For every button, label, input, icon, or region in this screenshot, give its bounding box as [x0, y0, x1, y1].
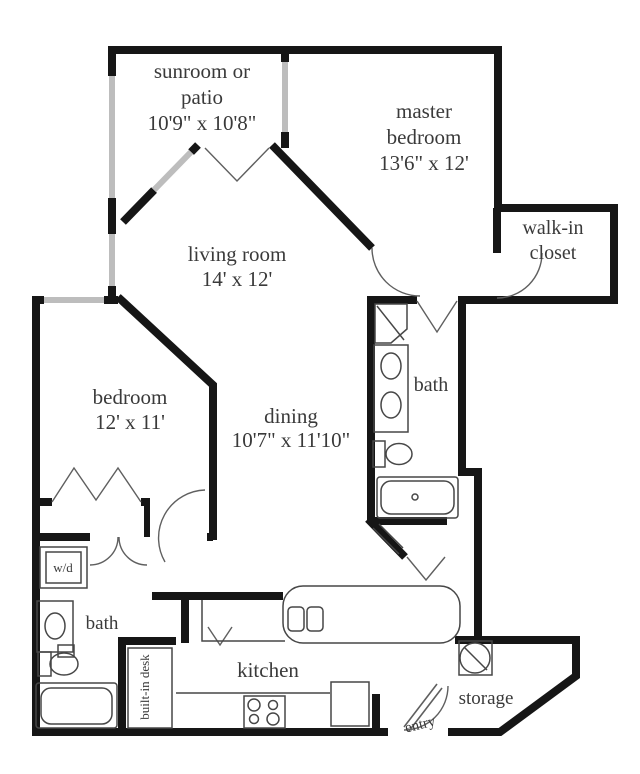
stove: [244, 696, 285, 728]
vanity-counter: [374, 345, 408, 432]
burner: [250, 715, 259, 724]
hall-bath-tub: [36, 683, 117, 728]
kitchen-sink-basin: [307, 607, 323, 631]
floor-plan-svg: sunroom or patio 10'9" x 10'8" master be…: [0, 0, 640, 774]
label-sunroom-line2: patio: [181, 85, 223, 109]
counter-top-left: [202, 600, 285, 641]
label-bedroom-name: bedroom: [93, 385, 168, 409]
label-closet-line2: closet: [530, 242, 577, 264]
label-kitchen: kitchen: [237, 658, 299, 682]
bathtub-outer: [36, 683, 117, 728]
hall-bath-sink: [37, 601, 74, 657]
master-bath-tub: [377, 477, 458, 518]
labels: sunroom or patio 10'9" x 10'8" master be…: [53, 59, 583, 736]
sunroom-french-doors: [205, 148, 269, 181]
kitchen-sink-basin: [288, 607, 304, 631]
bedroom-closet-bifold: [52, 468, 141, 502]
label-bedroom-dims: 12' x 11': [95, 410, 165, 434]
label-master-line1: master: [396, 99, 452, 123]
label-hall-bath: bath: [86, 613, 119, 634]
burner: [267, 713, 279, 725]
label-dining-name: dining: [264, 404, 318, 428]
tub-drain: [412, 494, 418, 500]
label-dining-dims: 10'7" x 11'10": [232, 428, 350, 452]
hall-double-door-left-arc: [90, 537, 118, 565]
kitchen-counters: [176, 586, 460, 693]
label-entry: entry: [403, 713, 437, 736]
floor-plan: sunroom or patio 10'9" x 10'8" master be…: [0, 0, 640, 774]
bedroom-door-arc: [159, 490, 205, 562]
label-master-dims: 13'6" x 12': [379, 151, 469, 175]
hall-double-door-right-arc: [119, 537, 147, 565]
toilet-bowl: [386, 444, 412, 465]
label-closet-line1: walk-in: [522, 217, 583, 239]
master-door-arc: [372, 248, 420, 296]
wall-master-diagonal: [272, 145, 372, 248]
master-bath-shower: [375, 304, 407, 343]
label-living-name: living room: [188, 242, 287, 266]
label-master-bath: bath: [414, 374, 448, 396]
label-sunroom-dims: 10'9" x 10'8": [148, 111, 257, 135]
bathtub-inner: [41, 688, 112, 724]
label-built-in-desk: built-in desk: [137, 654, 152, 720]
water-heater: [459, 641, 492, 675]
master-bath-toilet: [373, 441, 412, 467]
kitchen-door: [208, 627, 232, 645]
sink-basin: [381, 392, 401, 418]
burner: [269, 701, 278, 710]
label-storage: storage: [459, 688, 514, 709]
window-sunroom-diagonal: [154, 152, 191, 190]
sink-basin: [45, 613, 65, 639]
master-bath-door: [417, 301, 457, 332]
label-sunroom-line1: sunroom or: [154, 59, 250, 83]
counter-peninsula: [283, 586, 460, 643]
shower-door-line: [377, 306, 404, 340]
burner: [248, 699, 260, 711]
refrigerator: [331, 682, 369, 726]
label-master-line2: bedroom: [387, 125, 462, 149]
master-bath-vanity: [374, 345, 408, 432]
label-laundry: w/d: [53, 560, 73, 575]
sink-basin: [381, 353, 401, 379]
corridor-door: [407, 557, 445, 580]
label-living-dims: 14' x 12': [202, 267, 273, 291]
